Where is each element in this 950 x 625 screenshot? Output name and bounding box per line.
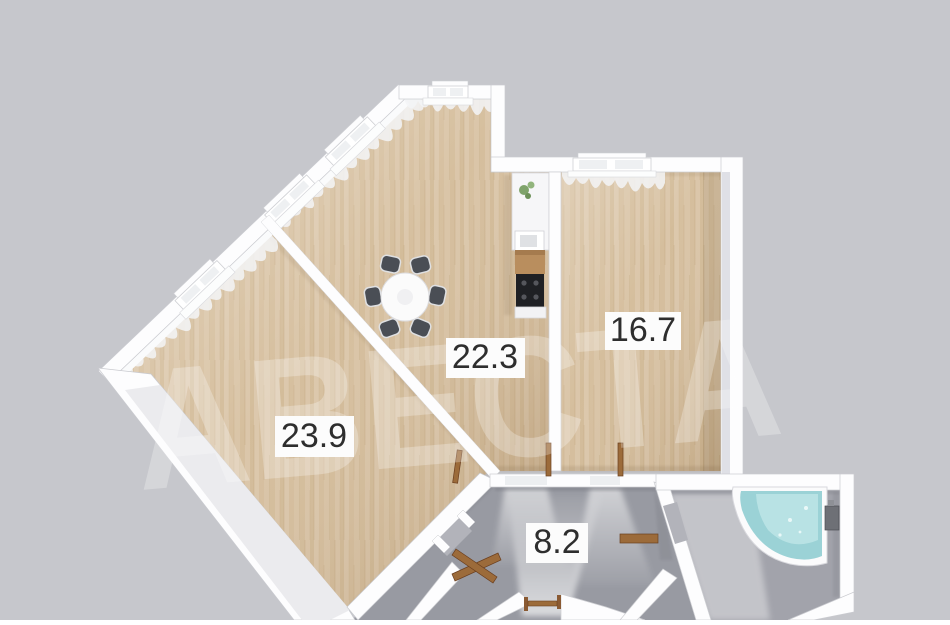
svg-text:23.9: 23.9	[281, 417, 347, 455]
svg-text:22.3: 22.3	[452, 338, 518, 376]
svg-text:16.7: 16.7	[610, 311, 676, 349]
svg-text:8.2: 8.2	[533, 523, 580, 561]
